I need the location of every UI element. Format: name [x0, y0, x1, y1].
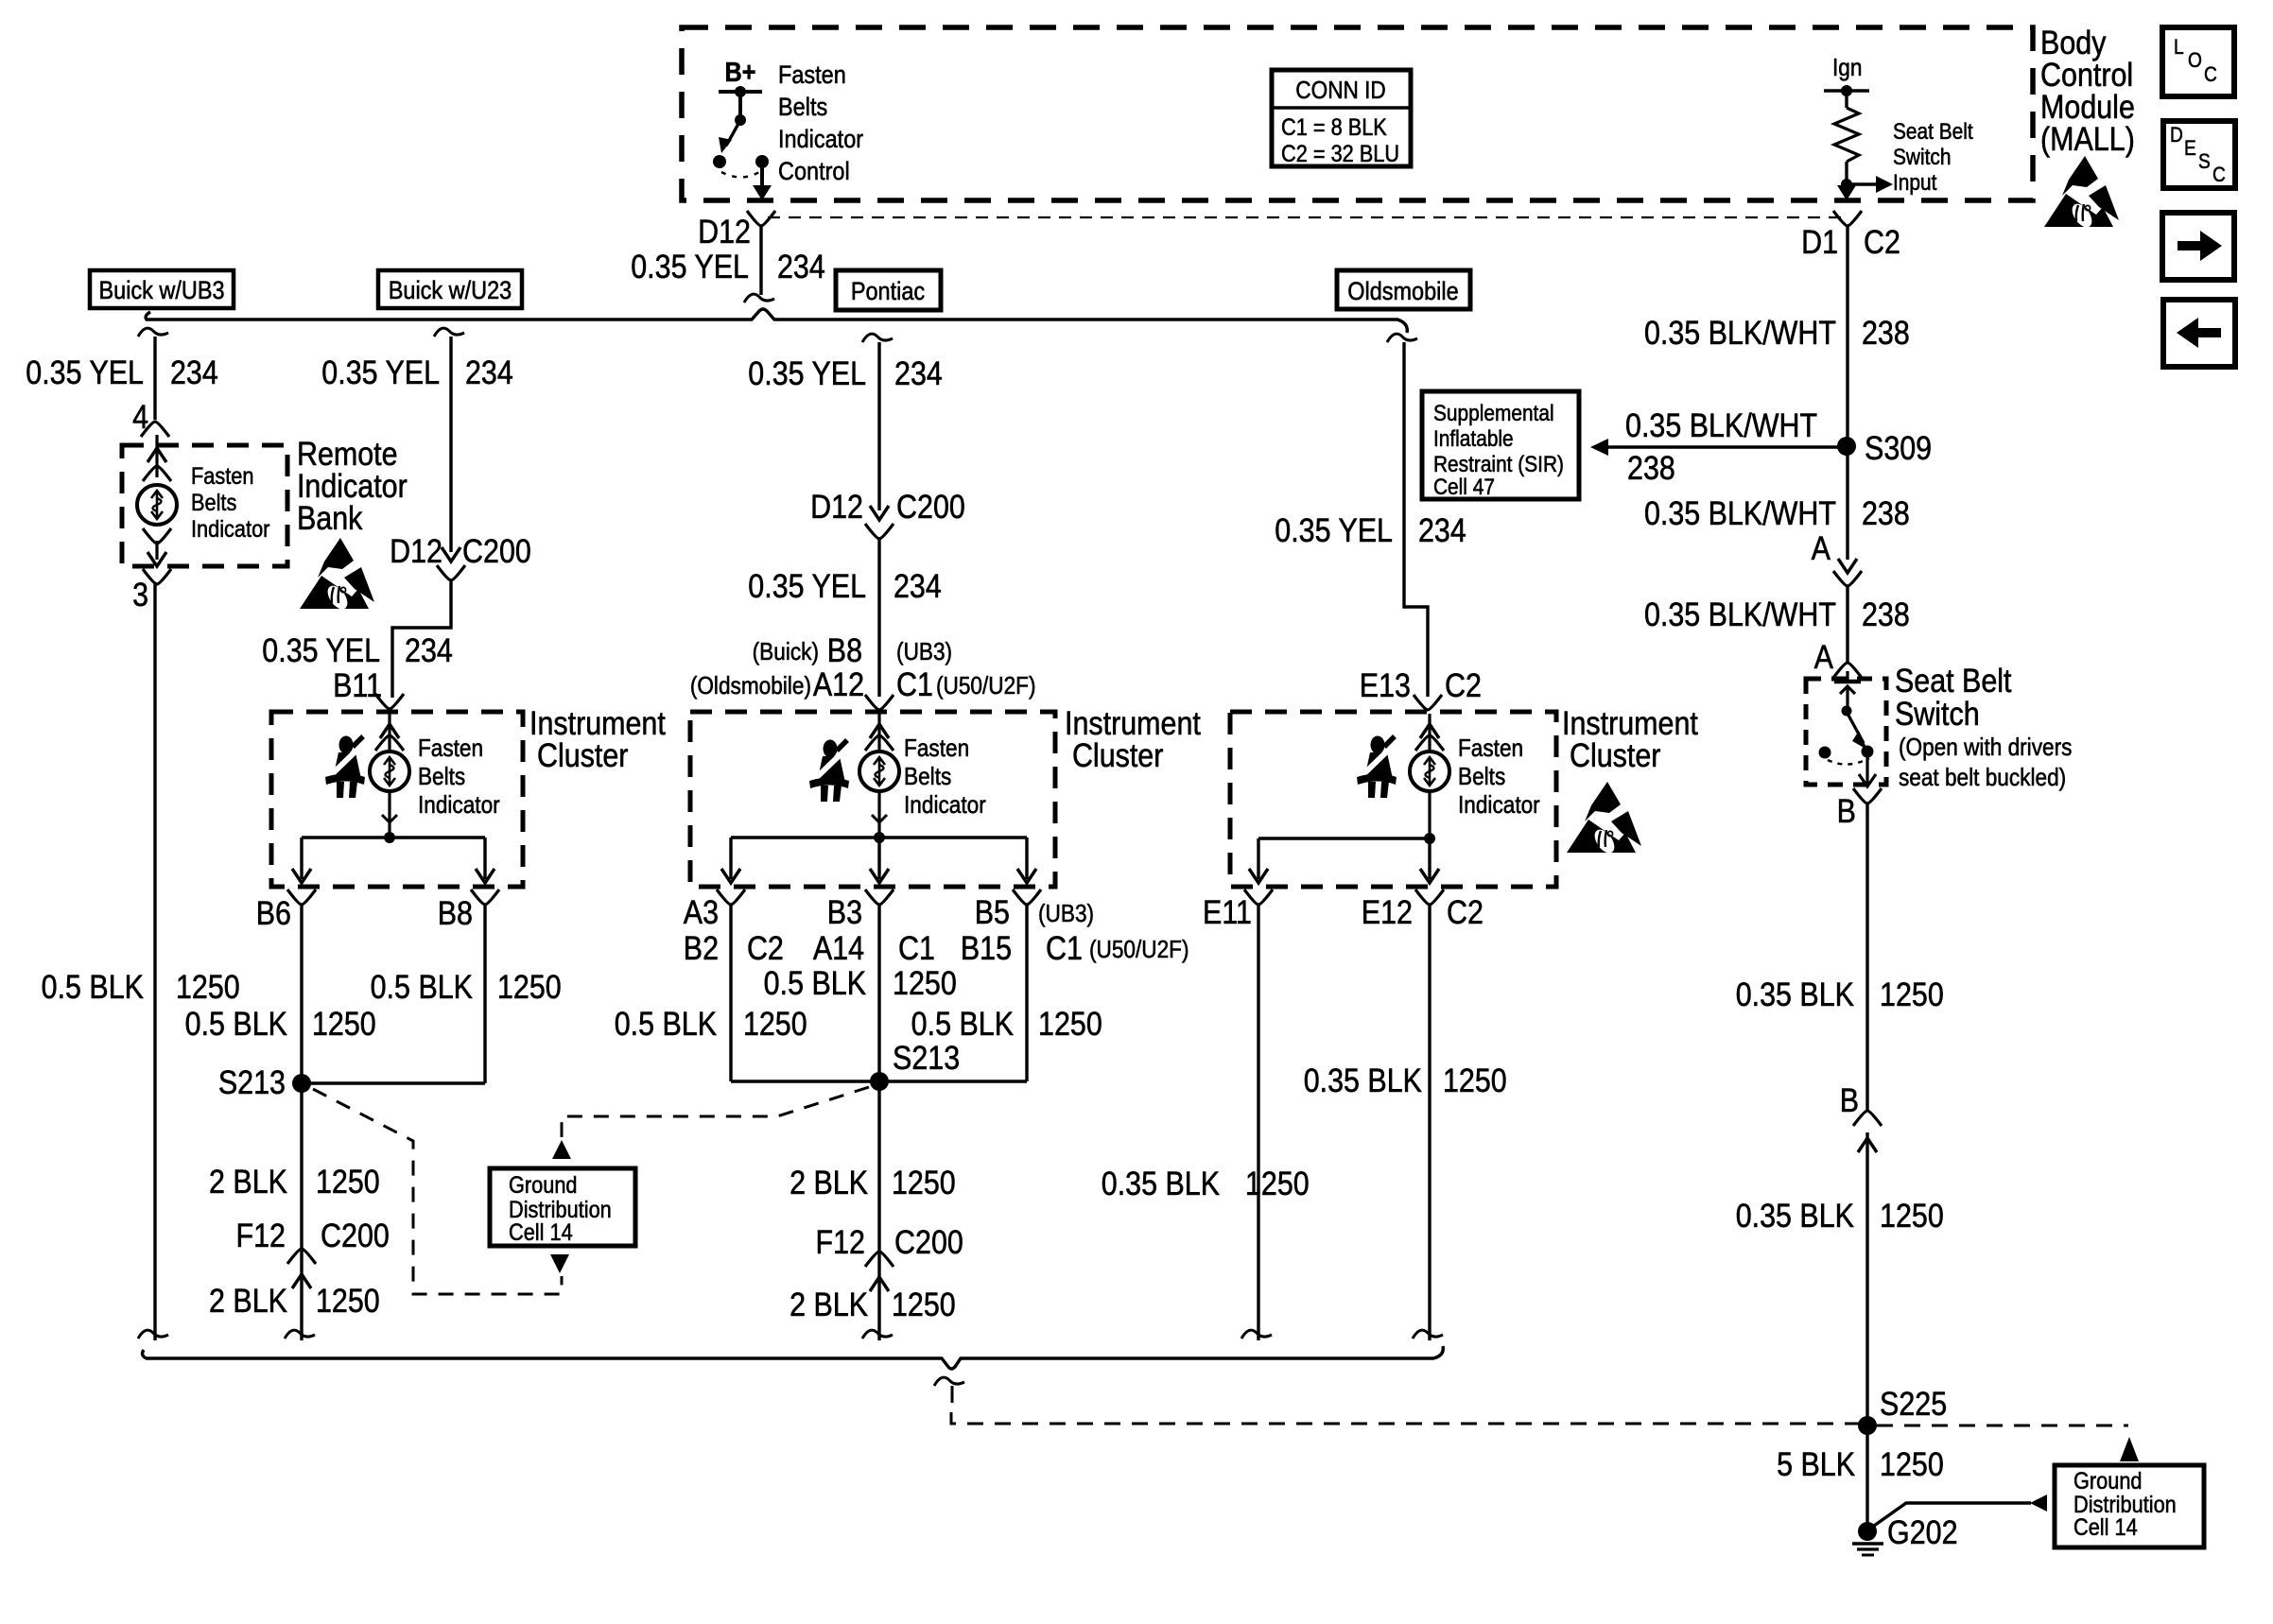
svg-text:G202: G202 — [1887, 1513, 1957, 1550]
svg-text:Indicator: Indicator — [778, 126, 863, 154]
svg-text:0.5 BLK: 0.5 BLK — [615, 1005, 717, 1042]
svg-text:S213: S213 — [893, 1039, 960, 1076]
svg-text:0.35 BLK/WHT: 0.35 BLK/WHT — [1625, 406, 1817, 443]
svg-text:C200: C200 — [462, 532, 531, 569]
svg-text:234: 234 — [405, 631, 453, 668]
svg-text:1250: 1250 — [892, 1286, 956, 1322]
svg-text:234: 234 — [894, 354, 943, 391]
svg-text:1250: 1250 — [1443, 1062, 1507, 1098]
svg-text:0.35 YEL: 0.35 YEL — [748, 567, 866, 604]
svg-text:234: 234 — [894, 567, 942, 604]
svg-text:0.35 BLK/WHT: 0.35 BLK/WHT — [1644, 494, 1836, 531]
svg-text:Switch: Switch — [1895, 695, 1980, 732]
svg-text:CONN ID: CONN ID — [1295, 78, 1385, 105]
svg-text:D12: D12 — [698, 213, 751, 250]
svg-text:1250: 1250 — [316, 1282, 380, 1319]
svg-text:(UB3): (UB3) — [1038, 901, 1094, 928]
svg-text:D12: D12 — [390, 532, 442, 569]
svg-text:C2 = 32 BLU: C2 = 32 BLU — [1281, 141, 1399, 167]
svg-text:Buick w/UB3: Buick w/UB3 — [98, 277, 224, 305]
svg-text:Cell 14: Cell 14 — [2073, 1514, 2138, 1541]
svg-text:1250: 1250 — [743, 1005, 807, 1042]
svg-text:234: 234 — [170, 354, 218, 390]
svg-text:E12: E12 — [1362, 893, 1413, 930]
svg-text:F12: F12 — [816, 1223, 865, 1260]
svg-text:(U50/U2F): (U50/U2F) — [1089, 937, 1189, 964]
svg-text:S225: S225 — [1880, 1385, 1947, 1422]
svg-text:D: D — [2170, 124, 2183, 147]
svg-text:A3: A3 — [684, 893, 719, 930]
svg-text:0.5 BLK: 0.5 BLK — [911, 1005, 1014, 1042]
svg-text:Indicator: Indicator — [1458, 792, 1540, 820]
svg-text:0.35 BLK/WHT: 0.35 BLK/WHT — [1644, 314, 1836, 351]
svg-text:seat belt buckled): seat belt buckled) — [1899, 765, 2066, 792]
svg-text:234: 234 — [465, 354, 513, 390]
svg-text:D1: D1 — [1801, 223, 1838, 260]
svg-text:0.35 YEL: 0.35 YEL — [631, 248, 749, 285]
svg-text:Supplemental: Supplemental — [1433, 401, 1554, 426]
svg-text:E11: E11 — [1203, 893, 1252, 930]
svg-text:0.35 YEL: 0.35 YEL — [748, 354, 866, 391]
svg-text:Indicator: Indicator — [191, 516, 270, 543]
svg-text:Belts: Belts — [418, 764, 465, 791]
svg-text:Cluster: Cluster — [537, 736, 629, 773]
svg-text:Pontiac: Pontiac — [851, 278, 925, 306]
svg-text:C1: C1 — [898, 929, 935, 966]
svg-text:1250: 1250 — [1880, 1197, 1944, 1234]
svg-text:A: A — [1812, 529, 1831, 566]
svg-text:C2: C2 — [1445, 666, 1482, 703]
svg-text:Seat Belt: Seat Belt — [1893, 119, 1973, 145]
svg-text:B15: B15 — [961, 929, 1012, 966]
svg-text:1250: 1250 — [893, 964, 957, 1001]
svg-text:F12: F12 — [236, 1217, 286, 1253]
svg-text:234: 234 — [777, 248, 825, 285]
svg-text:Ground: Ground — [2073, 1468, 2143, 1494]
svg-text:0.35 BLK: 0.35 BLK — [1304, 1062, 1422, 1098]
svg-text:Fasten: Fasten — [904, 735, 969, 763]
svg-text:1250: 1250 — [1038, 1005, 1102, 1042]
svg-text:1250: 1250 — [316, 1163, 380, 1200]
svg-text:B5: B5 — [975, 893, 1010, 930]
svg-text:3: 3 — [132, 576, 148, 613]
svg-text:0.35 YEL: 0.35 YEL — [26, 354, 144, 390]
svg-text:Belts: Belts — [1458, 764, 1505, 791]
svg-text:C2: C2 — [747, 929, 784, 966]
svg-text:L: L — [2174, 36, 2184, 60]
svg-text:Bank: Bank — [297, 499, 363, 536]
svg-text:Belts: Belts — [904, 764, 951, 791]
svg-text:B11: B11 — [333, 666, 382, 703]
svg-text:D12: D12 — [810, 488, 863, 525]
svg-text:C2: C2 — [1447, 893, 1484, 930]
svg-text:Oldsmobile: Oldsmobile — [1347, 278, 1458, 306]
svg-text:Fasten: Fasten — [191, 463, 253, 490]
svg-text:1250: 1250 — [497, 968, 562, 1005]
svg-text:2 BLK: 2 BLK — [209, 1282, 287, 1319]
svg-text:238: 238 — [1862, 314, 1910, 351]
svg-text:Control: Control — [778, 158, 850, 186]
svg-text:C200: C200 — [894, 1223, 963, 1260]
svg-text:0.5 BLK: 0.5 BLK — [42, 968, 144, 1005]
svg-text:(Open with drivers: (Open with drivers — [1899, 734, 2072, 762]
svg-text:Fasten: Fasten — [1458, 735, 1523, 763]
svg-text:1250: 1250 — [176, 968, 240, 1005]
svg-text:Cluster: Cluster — [1072, 736, 1164, 773]
svg-text:Belts: Belts — [191, 490, 236, 516]
svg-text:1250: 1250 — [892, 1164, 956, 1201]
svg-text:C2: C2 — [1864, 223, 1900, 260]
svg-text:(MALL): (MALL) — [2040, 120, 2135, 157]
svg-text:Ground: Ground — [509, 1172, 578, 1199]
svg-text:C1: C1 — [896, 665, 933, 702]
svg-text:Belts: Belts — [778, 94, 827, 122]
svg-text:Cell 14: Cell 14 — [509, 1219, 573, 1246]
svg-text:E13: E13 — [1360, 666, 1411, 703]
svg-text:(Oldsmobile): (Oldsmobile) — [690, 673, 811, 700]
svg-text:E: E — [2184, 137, 2196, 161]
svg-text:C1 = 8 BLK: C1 = 8 BLK — [1281, 114, 1387, 141]
svg-text:234: 234 — [1418, 511, 1466, 548]
svg-text:C200: C200 — [896, 488, 965, 525]
svg-text:Indicator: Indicator — [904, 792, 986, 820]
svg-text:B: B — [1840, 1081, 1859, 1118]
svg-text:Buick w/U23: Buick w/U23 — [389, 277, 512, 305]
svg-text:Ign: Ign — [1832, 55, 1862, 82]
svg-text:238: 238 — [1627, 449, 1675, 486]
svg-text:238: 238 — [1862, 494, 1910, 531]
svg-text:C: C — [2212, 164, 2226, 187]
svg-text:A14: A14 — [813, 929, 864, 966]
svg-text:B2: B2 — [684, 929, 719, 966]
svg-text:B: B — [1837, 792, 1856, 829]
svg-text:Input: Input — [1893, 170, 1937, 196]
svg-text:S213: S213 — [218, 1063, 286, 1100]
svg-text:5 BLK: 5 BLK — [1777, 1445, 1855, 1482]
svg-text:0.35 BLK: 0.35 BLK — [1736, 1197, 1854, 1234]
svg-text:B6: B6 — [256, 894, 291, 931]
svg-text:Indicator: Indicator — [418, 792, 500, 820]
svg-text:0.35 YEL: 0.35 YEL — [262, 631, 380, 668]
svg-text:S: S — [2198, 150, 2211, 174]
svg-text:1250: 1250 — [312, 1005, 376, 1042]
svg-text:1250: 1250 — [1880, 976, 1944, 1012]
svg-text:1250: 1250 — [1880, 1445, 1944, 1482]
svg-text:C1: C1 — [1046, 929, 1083, 966]
svg-text:1250: 1250 — [1245, 1165, 1310, 1201]
svg-text:0.35 BLK: 0.35 BLK — [1102, 1165, 1220, 1201]
svg-text:2 BLK: 2 BLK — [789, 1286, 868, 1322]
svg-text:(UB3): (UB3) — [896, 639, 952, 666]
svg-text:Restraint (SIR): Restraint (SIR) — [1433, 452, 1564, 477]
svg-text:0.5 BLK: 0.5 BLK — [371, 968, 473, 1005]
svg-text:S309: S309 — [1865, 429, 1932, 466]
svg-text:0.35 YEL: 0.35 YEL — [321, 354, 440, 390]
svg-text:(Buick): (Buick) — [753, 639, 819, 666]
svg-text:238: 238 — [1862, 596, 1910, 632]
svg-text:C: C — [2204, 63, 2217, 87]
svg-text:Inflatable: Inflatable — [1433, 426, 1514, 452]
svg-text:B8: B8 — [827, 631, 862, 668]
svg-text:A: A — [1814, 638, 1833, 675]
svg-text:0.35 BLK/WHT: 0.35 BLK/WHT — [1644, 596, 1836, 632]
svg-text:B+: B+ — [725, 56, 756, 87]
svg-text:0.5 BLK: 0.5 BLK — [764, 964, 866, 1001]
svg-text:0.35 BLK: 0.35 BLK — [1736, 976, 1854, 1012]
svg-text:C200: C200 — [321, 1217, 390, 1253]
svg-text:0.5 BLK: 0.5 BLK — [185, 1005, 287, 1042]
svg-text:A12: A12 — [813, 665, 864, 702]
svg-text:0.35 YEL: 0.35 YEL — [1275, 511, 1393, 548]
svg-text:B3: B3 — [827, 893, 862, 930]
svg-text:Switch: Switch — [1893, 145, 1951, 170]
svg-text:(U50/U2F): (U50/U2F) — [936, 673, 1036, 700]
svg-text:2 BLK: 2 BLK — [209, 1163, 287, 1200]
svg-text:Cluster: Cluster — [1570, 736, 1661, 773]
svg-text:O: O — [2188, 49, 2202, 73]
svg-text:Cell 47: Cell 47 — [1433, 475, 1495, 500]
svg-text:Fasten: Fasten — [778, 61, 846, 90]
svg-text:2 BLK: 2 BLK — [789, 1164, 868, 1201]
svg-text:B8: B8 — [438, 894, 473, 931]
svg-text:Fasten: Fasten — [418, 735, 483, 763]
svg-text:Seat Belt: Seat Belt — [1895, 662, 2012, 699]
